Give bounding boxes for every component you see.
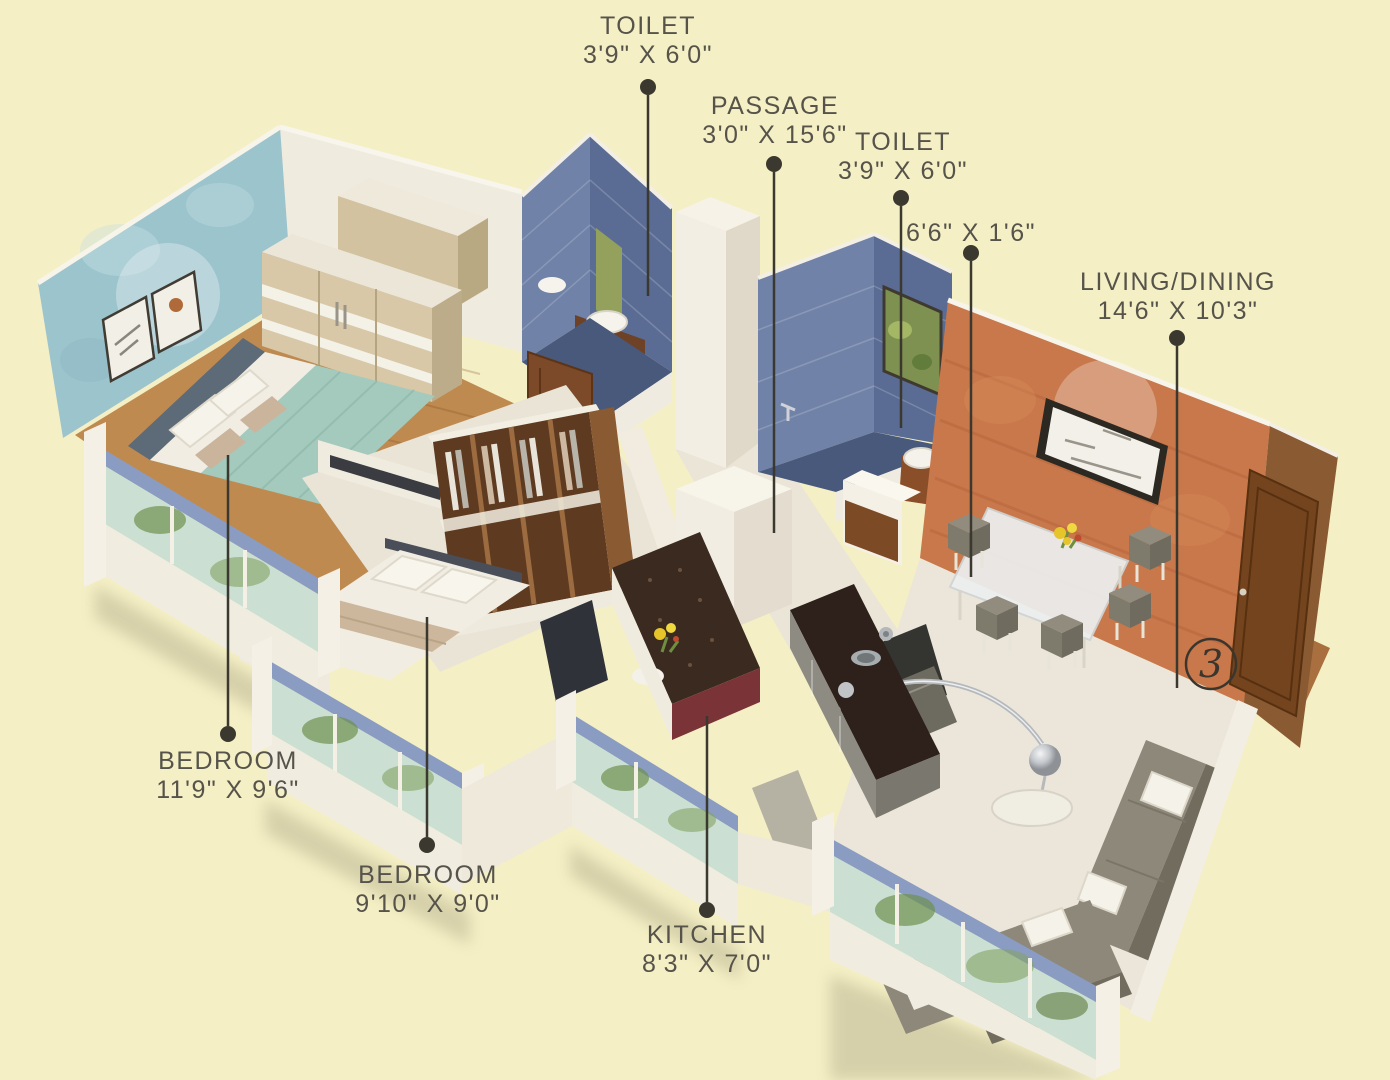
room-name: TOILET [838,128,968,157]
unit-number: 3 [1199,642,1223,686]
room-dims: 3'9" X 6'0" [838,157,968,186]
room-name: KITCHEN [642,921,772,950]
room-dims: 3'9" X 6'0" [583,41,713,70]
label-bedroom-left: BEDROOM 11'9" X 9'6" [156,747,300,805]
room-name: TOILET [583,12,713,41]
room-name: PASSAGE [702,92,847,121]
label-passage: PASSAGE 3'0" X 15'6" [702,92,847,150]
label-toilet-right: TOILET 3'9" X 6'0" [838,128,968,186]
label-toilet-top: TOILET 3'9" X 6'0" [583,12,713,70]
room-dims: 11'9" X 9'6" [156,776,300,805]
label-bedroom-center: BEDROOM 9'10" X 9'0" [355,861,500,919]
floorplan-page: 3 TOILET 3'9" X 6'0" PASSAGE 3'0" X 15'6… [0,0,1390,1080]
label-living-dining: LIVING/DINING 14'6" X 10'3" [1080,268,1276,326]
room-name: LIVING/DINING [1080,268,1276,297]
room-dims: 14'6" X 10'3" [1080,297,1276,326]
room-dims: 8'3" X 7'0" [642,950,772,979]
room-dims: 6'6" X 1'6" [906,219,1036,248]
floorplan-3d-render: 3 [0,0,1390,1080]
room-dims: 9'10" X 9'0" [355,890,500,919]
room-name: BEDROOM [156,747,300,776]
label-niche: 6'6" X 1'6" [906,219,1036,248]
room-dims: 3'0" X 15'6" [702,121,847,150]
room-name: BEDROOM [355,861,500,890]
label-kitchen: KITCHEN 8'3" X 7'0" [642,921,772,979]
